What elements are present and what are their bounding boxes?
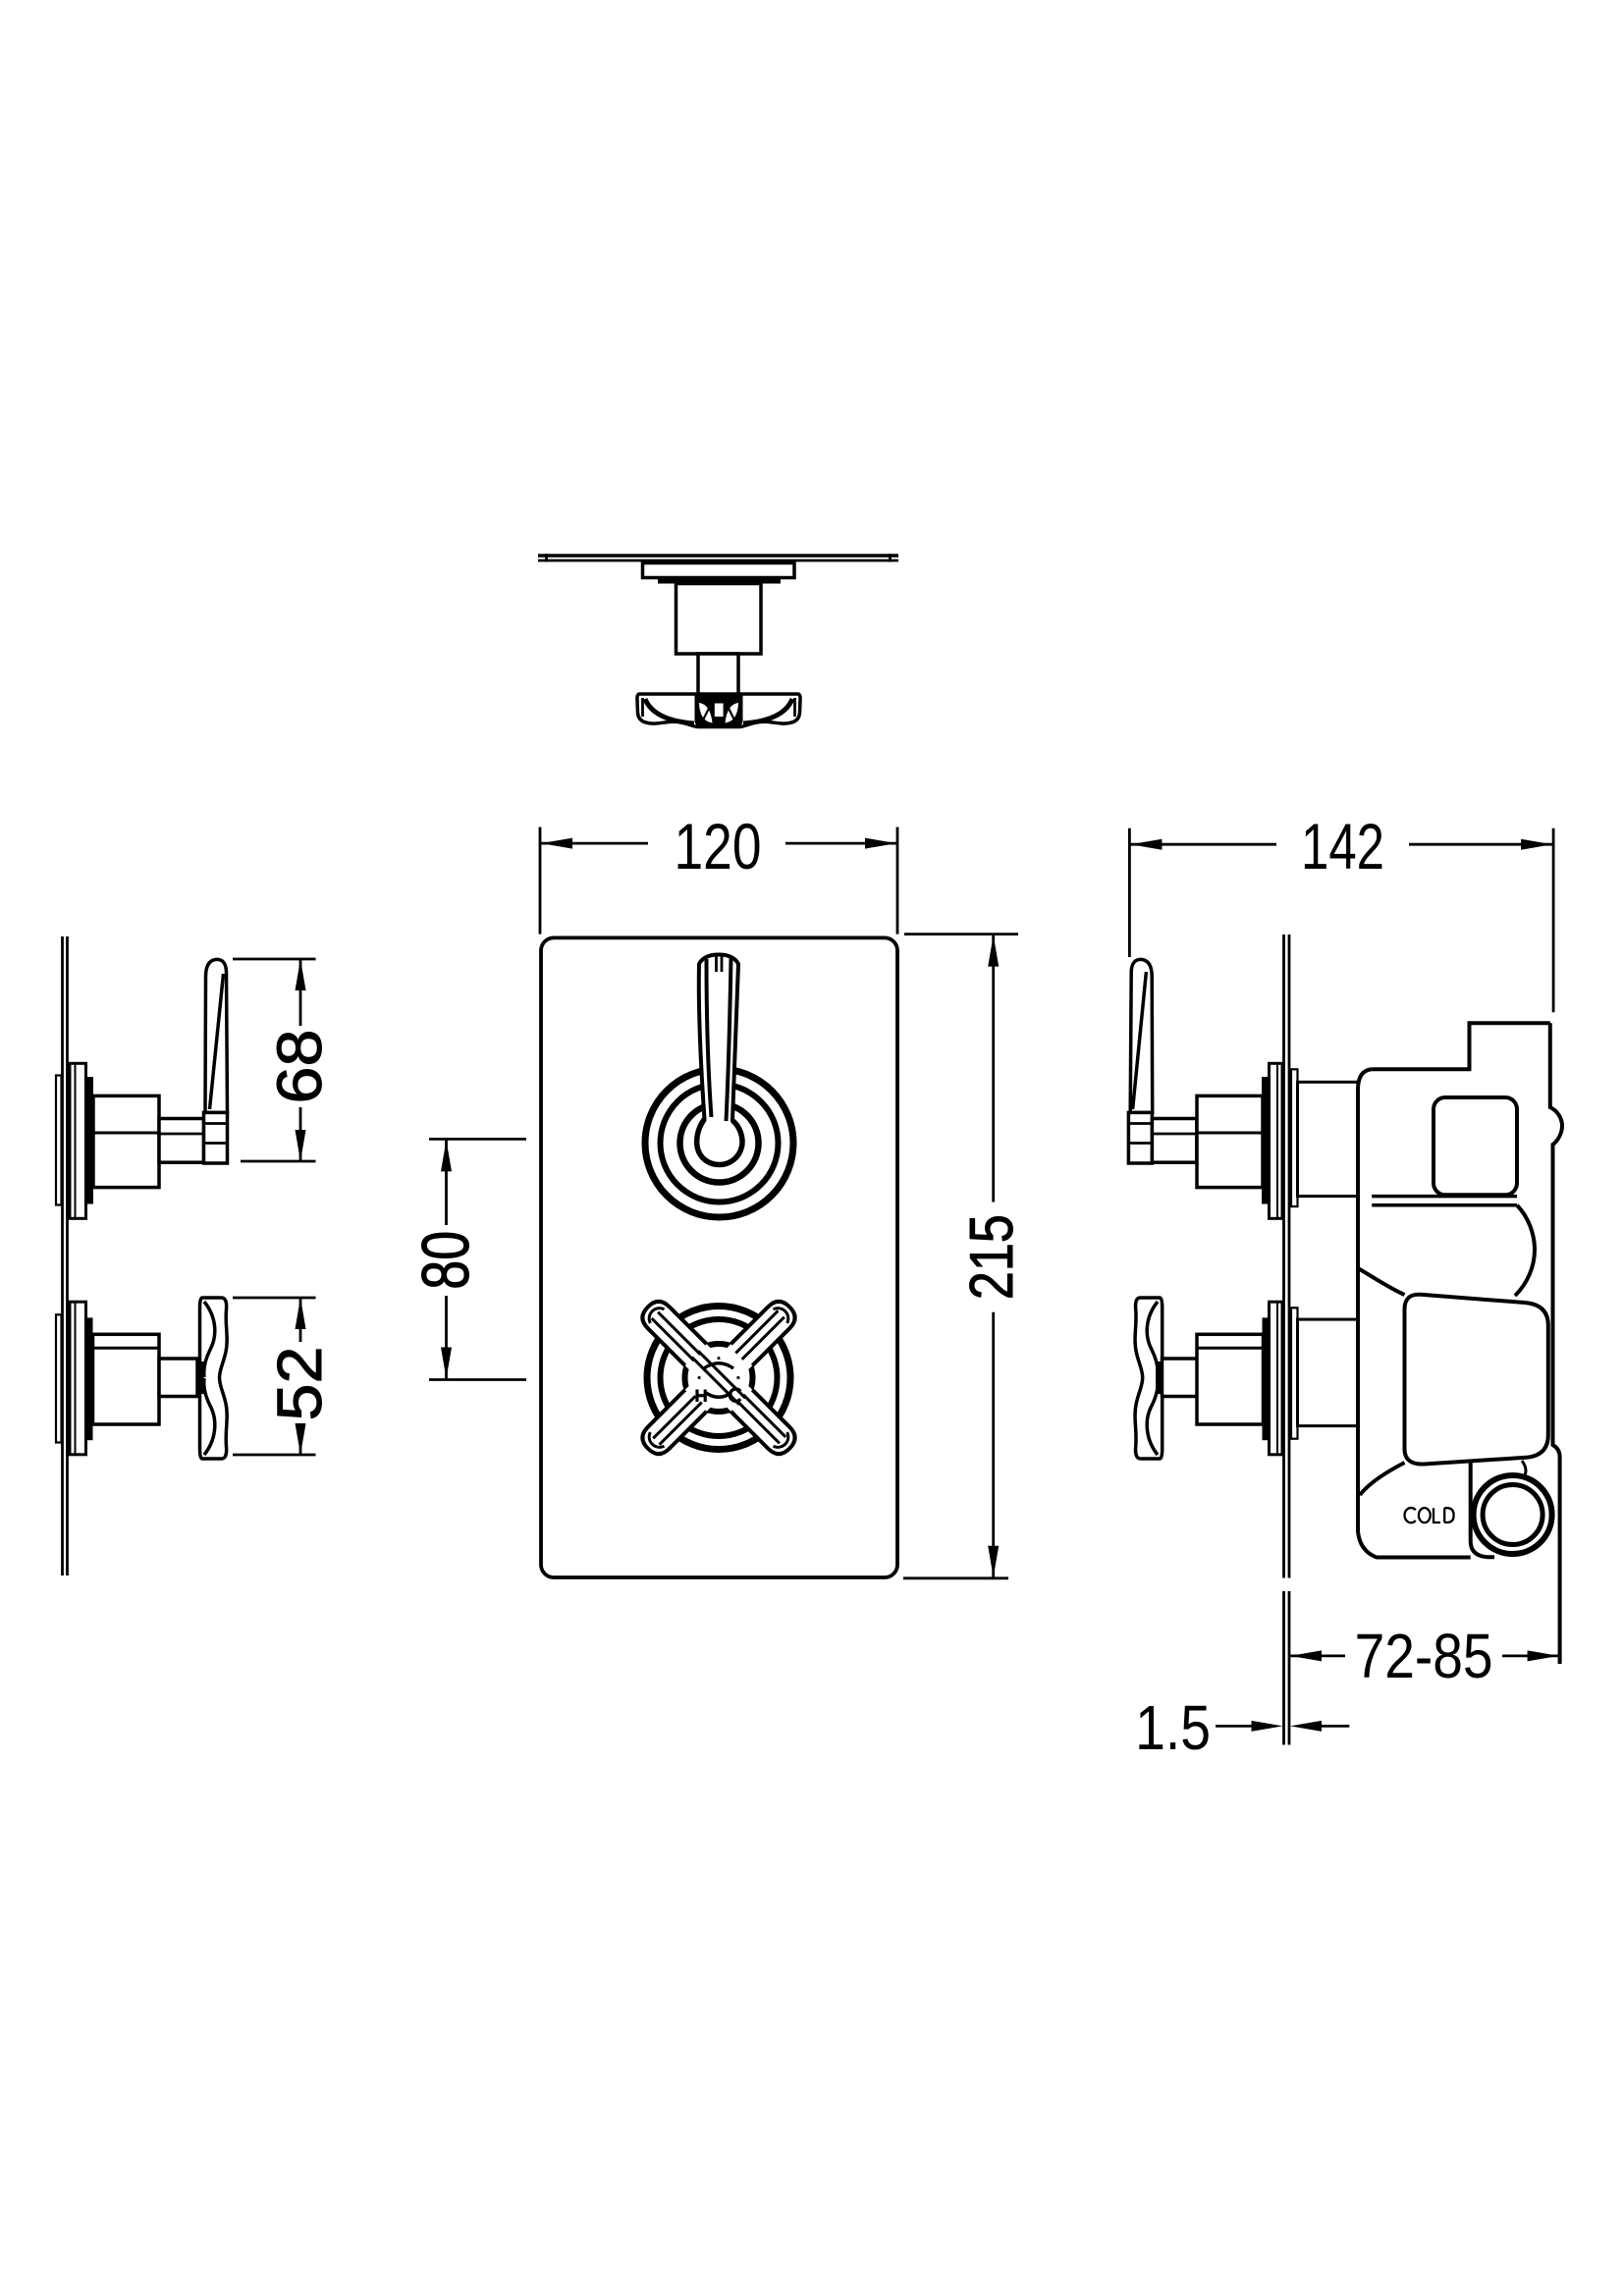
svg-text:1.5: 1.5 — [1135, 1692, 1211, 1763]
svg-text:120: 120 — [675, 810, 762, 882]
svg-text:72-85: 72-85 — [1355, 1621, 1493, 1691]
svg-text:52: 52 — [264, 1347, 335, 1421]
svg-text:142: 142 — [1301, 810, 1384, 882]
svg-text:68: 68 — [264, 1030, 335, 1104]
svg-text:215: 215 — [958, 1214, 1026, 1300]
svg-text:80: 80 — [408, 1231, 483, 1290]
